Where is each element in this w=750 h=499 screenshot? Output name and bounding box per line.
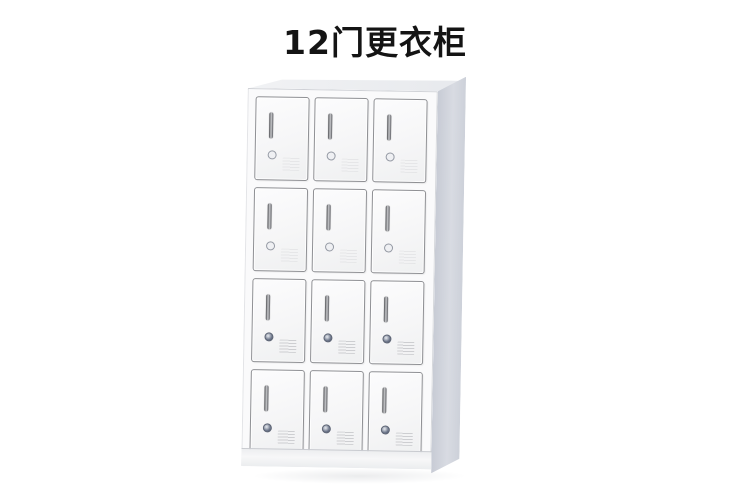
door-handle-icon <box>269 112 273 138</box>
locker-door <box>313 97 368 182</box>
door-handle-icon <box>323 386 327 412</box>
door-vent-grille-icon <box>396 433 413 446</box>
door-handle-icon <box>266 294 270 320</box>
door-lock-icon <box>382 334 391 343</box>
door-handle-icon <box>328 113 332 139</box>
door-lock-icon <box>263 423 272 432</box>
door-handle-icon <box>325 295 329 321</box>
floor-shadow <box>252 468 467 484</box>
door-vent-grille-icon <box>282 158 299 171</box>
door-handle-icon <box>385 205 389 231</box>
door-lock-icon <box>322 424 331 433</box>
locker-door <box>251 278 306 363</box>
door-handle-icon <box>382 387 386 413</box>
door-handle-icon <box>264 385 268 411</box>
door-vent-grille-icon <box>278 431 295 444</box>
cabinet-base <box>241 448 431 469</box>
product-page: 12门更衣柜 <box>0 0 750 499</box>
door-handle-icon <box>384 296 388 322</box>
cabinet-front <box>241 88 438 469</box>
door-vent-grille-icon <box>399 251 416 264</box>
product-title: 12门更衣柜 <box>0 16 750 64</box>
door-handle-icon <box>387 114 391 140</box>
locker-door <box>308 370 363 455</box>
door-lock-icon <box>384 243 393 252</box>
door-vent-grille-icon <box>337 432 354 445</box>
door-vent-grille-icon <box>279 340 296 353</box>
door-lock-icon <box>381 425 390 434</box>
door-lock-icon <box>325 242 334 251</box>
door-handle-icon <box>267 203 271 229</box>
door-lock-icon <box>268 150 277 159</box>
door-lock-icon <box>323 333 332 342</box>
door-vent-grille-icon <box>397 342 414 355</box>
door-vent-grille-icon <box>281 249 298 262</box>
door-vent-grille-icon <box>341 159 358 172</box>
locker-door <box>372 98 427 183</box>
locker-door <box>310 279 365 364</box>
locker-cabinet-image <box>241 77 470 485</box>
locker-door <box>367 371 422 456</box>
door-vent-grille-icon <box>340 250 357 263</box>
door-lock-icon <box>386 152 395 161</box>
locker-door <box>371 189 426 274</box>
locker-door <box>312 188 367 273</box>
locker-door <box>249 369 304 454</box>
door-vent-grille-icon <box>400 160 417 173</box>
door-lock-icon <box>327 151 336 160</box>
door-grid <box>249 96 427 456</box>
locker-door <box>254 96 309 181</box>
door-lock-icon <box>264 332 273 341</box>
locker-door <box>369 280 424 365</box>
door-lock-icon <box>266 241 275 250</box>
door-handle-icon <box>326 204 330 230</box>
locker-door <box>253 187 308 272</box>
door-vent-grille-icon <box>338 341 355 354</box>
